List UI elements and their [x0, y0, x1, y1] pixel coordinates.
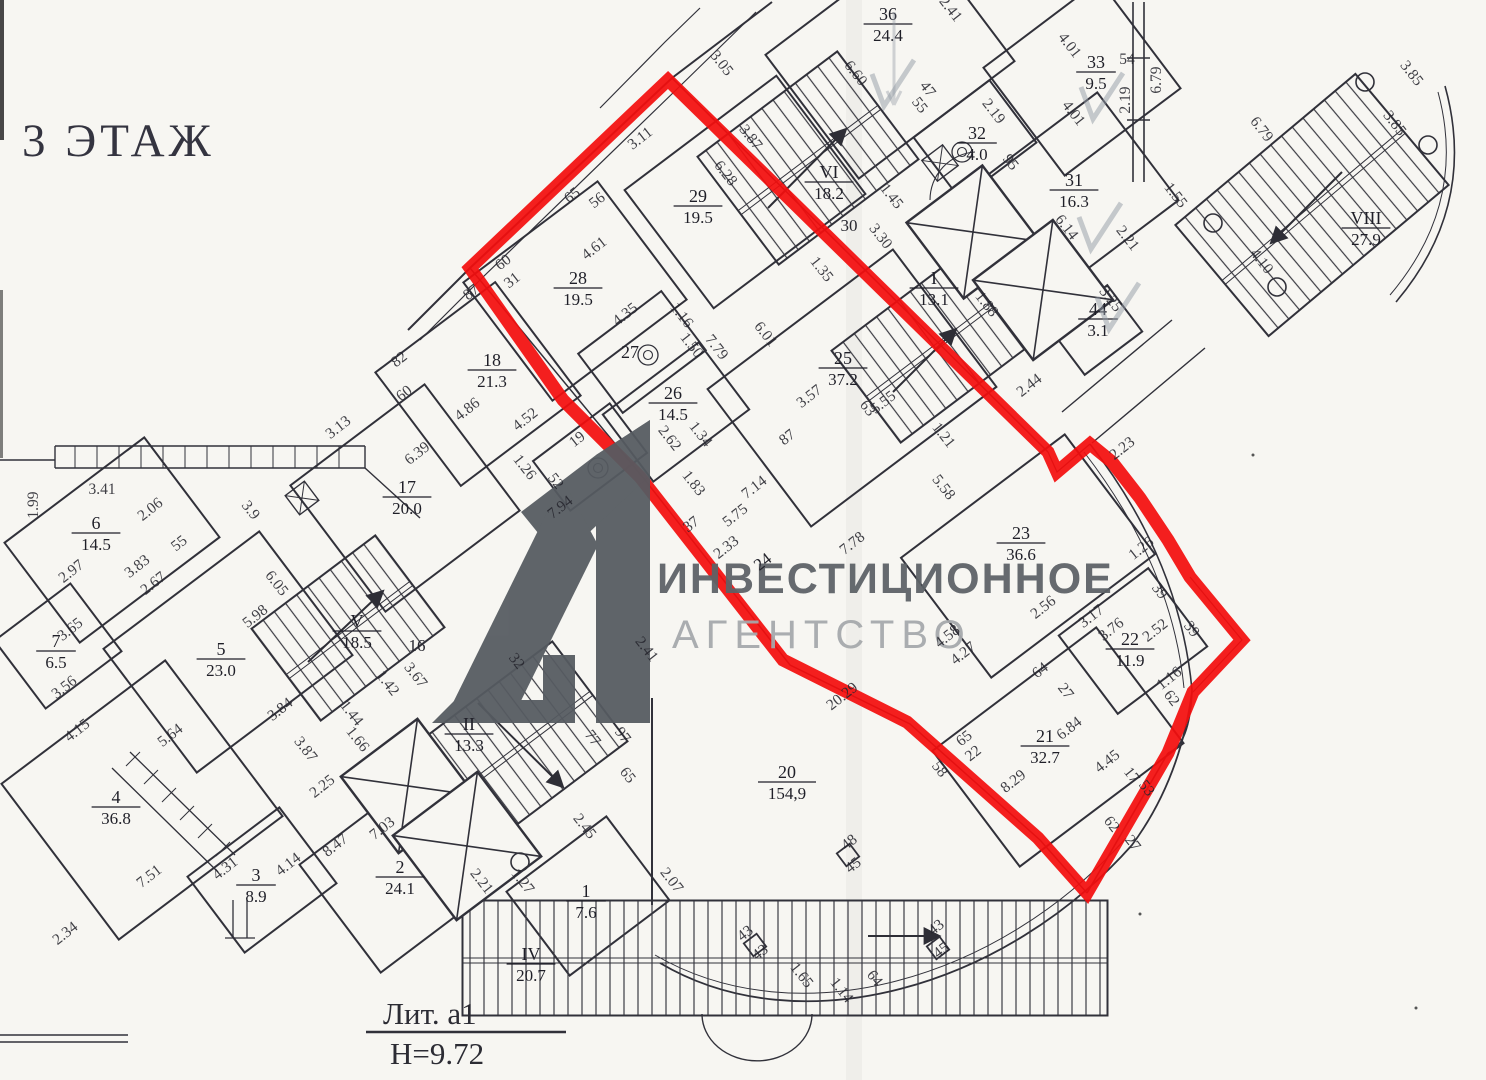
svg-text:VIII: VIII: [1351, 208, 1382, 228]
dimension-label: 6.01: [750, 318, 780, 350]
dimension-label: 55: [168, 532, 191, 555]
room-label: 324.0: [957, 123, 997, 164]
svg-text:VI: VI: [820, 162, 839, 182]
svg-text:V: V: [351, 611, 364, 631]
dimension-label: 1.83: [678, 467, 708, 499]
svg-text:26: 26: [664, 383, 682, 403]
watermark-line2: АГЕНТСТВО: [672, 613, 972, 657]
plan-shape: [1, 660, 282, 939]
svg-text:19.5: 19.5: [683, 208, 713, 227]
dimension-label: 95: [999, 151, 1022, 174]
dimension-label: 2.06: [134, 494, 166, 524]
room-label: 2614.5: [649, 383, 698, 424]
dimension-label: 2.97: [55, 556, 87, 586]
dimension-label: 65: [616, 764, 639, 787]
dimension-label: 7.78: [836, 528, 868, 558]
svg-text:25: 25: [834, 348, 852, 368]
svg-text:27: 27: [621, 342, 639, 362]
dimension-label: 8.29: [997, 766, 1029, 796]
dimension-label: 7.51: [133, 861, 165, 891]
svg-text:18: 18: [483, 350, 501, 370]
dimension-label: 2.62: [654, 422, 684, 454]
dimension-label: 3.11: [625, 124, 656, 154]
room-label: 20154,9: [758, 762, 816, 803]
room-label: 27: [621, 342, 639, 362]
svg-text:16.3: 16.3: [1059, 192, 1089, 211]
dimension-label: 8.47: [319, 830, 351, 860]
dimension-label: 1.55: [1160, 179, 1190, 211]
svg-text:1: 1: [582, 881, 591, 901]
svg-text:4.0: 4.0: [966, 145, 987, 164]
dimension-label: 6.05: [261, 567, 291, 599]
dimension-label: 5.75: [719, 500, 751, 530]
plan-shape: [463, 901, 1108, 1016]
svg-text:154,9: 154,9: [768, 784, 806, 803]
svg-text:28: 28: [569, 268, 587, 288]
svg-text:32.7: 32.7: [1030, 748, 1060, 767]
floor-title: 3 ЭТАЖ: [22, 115, 215, 167]
plan-shape: [1175, 74, 1448, 336]
svg-text:11.9: 11.9: [1115, 651, 1144, 670]
svg-text:14.5: 14.5: [658, 405, 688, 424]
dimension-label: 4.45: [1091, 746, 1123, 776]
dimension-label: 7.14: [738, 472, 770, 502]
svg-text:24.4: 24.4: [873, 26, 903, 45]
svg-text:36.6: 36.6: [1006, 545, 1036, 564]
dimension-label: 54: [1119, 51, 1135, 68]
room-label: 2819.5: [554, 268, 603, 309]
dimension-label: 1.66: [342, 723, 372, 755]
dimension-label: 1.99: [25, 491, 42, 518]
svg-text:27.9: 27.9: [1351, 230, 1381, 249]
svg-text:36.8: 36.8: [101, 809, 131, 828]
dimension-label: 2.34: [49, 918, 81, 948]
svg-text:21: 21: [1036, 726, 1054, 746]
room-label: 1821.3: [468, 350, 517, 391]
dimension-label: 3.56: [48, 672, 80, 702]
plan-shape: [252, 535, 445, 720]
svg-text:2: 2: [396, 857, 405, 877]
room-label: 2919.5: [674, 186, 723, 227]
dimension-label: 1.34: [685, 418, 715, 450]
svg-text:13.3: 13.3: [454, 736, 484, 755]
svg-text:3: 3: [252, 865, 261, 885]
dimension-label: 4.31: [209, 853, 241, 883]
dimension-label: 1.21: [928, 419, 958, 451]
svg-text:14.5: 14.5: [81, 535, 111, 554]
dimension-label: 6.84: [1053, 713, 1085, 743]
corridor-label: 30: [841, 216, 858, 235]
dimension-label: 3.9: [238, 497, 263, 523]
room-label: 38.9: [236, 865, 276, 906]
svg-text:9.5: 9.5: [1085, 74, 1106, 93]
svg-text:IV: IV: [522, 944, 541, 964]
dimension-label: 3.05: [706, 47, 736, 79]
dimension-label: 3.57: [793, 381, 825, 411]
height-label: H=9.72: [390, 1036, 484, 1071]
dimension-label: 3.67: [400, 659, 430, 691]
dimension-label: 3.85: [1396, 57, 1426, 89]
column-round: [1419, 136, 1437, 154]
dimension-label: 87: [776, 426, 799, 449]
dimension-label: 2.21: [1112, 222, 1142, 254]
svg-text:4: 4: [112, 787, 121, 807]
svg-text:21.3: 21.3: [477, 372, 507, 391]
svg-text:23: 23: [1012, 523, 1030, 543]
svg-text:17: 17: [398, 477, 416, 497]
svg-text:24.1: 24.1: [385, 879, 415, 898]
dimension-label: 4.35: [609, 299, 641, 329]
svg-text:29: 29: [689, 186, 707, 206]
dimension-label: 31: [501, 269, 524, 292]
svg-text:13.1: 13.1: [919, 290, 949, 309]
dimension-label: 27: [1054, 680, 1077, 703]
dimension-label: 82: [388, 348, 411, 371]
svg-text:19.5: 19.5: [563, 290, 593, 309]
dimension-label: 3.13: [322, 412, 354, 442]
dimension-label: 4.86: [451, 394, 483, 424]
svg-text:5: 5: [217, 639, 226, 659]
dimension-label: 2.19: [1117, 86, 1134, 113]
dimension-label: 4.15: [61, 715, 93, 745]
dimension-label: 2.45: [569, 810, 599, 842]
room-label: 523.0: [197, 639, 246, 680]
svg-text:6: 6: [92, 513, 101, 533]
room-label: 436.8: [92, 787, 141, 828]
dimension-label: 4.61: [578, 233, 610, 263]
dimension-label: 1.35: [806, 253, 836, 285]
dimension-label: 2.44: [1013, 370, 1045, 400]
svg-text:18.2: 18.2: [814, 184, 844, 203]
dimension-label: 4.01: [1054, 29, 1084, 61]
svg-text:33: 33: [1087, 52, 1105, 72]
liter-label: Лит. a1: [383, 996, 477, 1031]
plumbing-fixture-icon: [638, 345, 658, 365]
room-label: 3116.3: [1050, 170, 1099, 211]
svg-text:32: 32: [968, 123, 986, 143]
svg-text:23.0: 23.0: [206, 661, 236, 680]
svg-text:20.7: 20.7: [516, 966, 546, 985]
corridor-label: 16: [409, 636, 426, 655]
dimension-label: 5.58: [928, 471, 958, 503]
dimension-label: 2.52: [1139, 615, 1171, 645]
svg-text:II: II: [463, 714, 475, 734]
dimension-label: 3.87: [290, 733, 320, 765]
dimension-label: 3.41: [88, 481, 115, 498]
dimension-label: 4.14: [272, 849, 304, 879]
svg-text:I: I: [931, 268, 937, 288]
room-label: 1720.0: [383, 477, 432, 518]
svg-text:31: 31: [1065, 170, 1083, 190]
room-label: 3624.4: [864, 4, 913, 45]
svg-text:6.5: 6.5: [45, 653, 66, 672]
svg-text:20.0: 20.0: [392, 499, 422, 518]
floorplan-page: { "header": { "floor_title": "3 ЭТАЖ" },…: [0, 0, 1486, 1080]
plan-shape: [187, 807, 336, 952]
dimension-label: 6.79: [1246, 113, 1276, 145]
dimension-label: 7.79: [701, 331, 731, 363]
dimension-label: 1.26: [1125, 533, 1157, 563]
dimension-label: 6.79: [1148, 66, 1165, 93]
dimension-label: 2.07: [656, 864, 686, 896]
svg-text:7.6: 7.6: [575, 903, 596, 922]
dimension-label: 1.26: [509, 451, 539, 483]
svg-text:20: 20: [778, 762, 796, 782]
svg-text:22: 22: [1121, 629, 1139, 649]
dimension-label: 2.41: [935, 0, 965, 25]
dimension-label: 45: [842, 854, 865, 877]
dimension-label: 3.30: [865, 220, 895, 252]
svg-text:18.5: 18.5: [342, 633, 372, 652]
room-label: 614.5: [72, 513, 121, 554]
dimension-label: 3.84: [264, 694, 296, 724]
dimension-label: 2.25: [306, 771, 338, 801]
svg-text:8.9: 8.9: [245, 887, 266, 906]
svg-text:37.2: 37.2: [828, 370, 858, 389]
floorplan-drawing: ИНВЕСТИЦИОННОЕ АГЕНТСТВО 3 ЭТАЖ Лит. a1 …: [0, 0, 1486, 1080]
dimension-label: 5.64: [154, 720, 186, 750]
